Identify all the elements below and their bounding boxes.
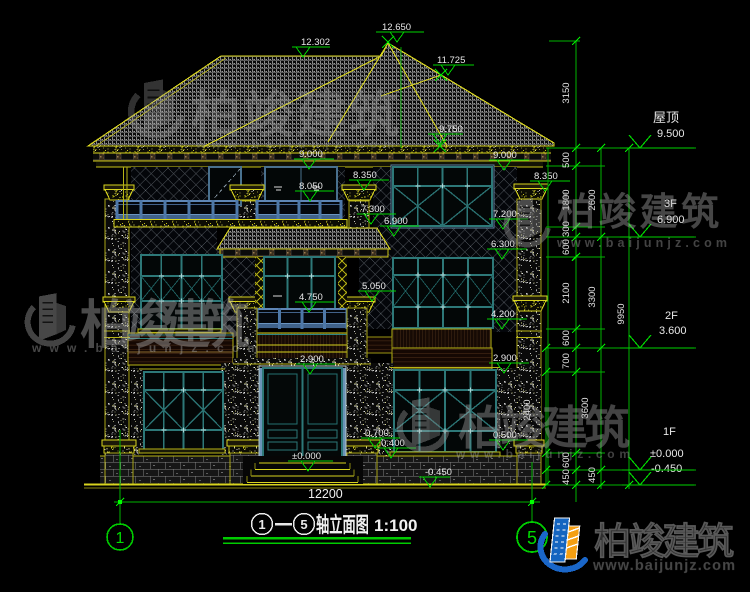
- svg-text:2.900: 2.900: [300, 354, 324, 365]
- svg-text:450: 450: [561, 469, 572, 485]
- svg-text:12.650: 12.650: [382, 22, 411, 33]
- svg-text:屋顶: 屋顶: [653, 110, 679, 125]
- svg-text:轴立面图: 轴立面图: [316, 513, 369, 537]
- svg-text:5.050: 5.050: [362, 281, 386, 292]
- svg-text:600: 600: [561, 330, 572, 346]
- svg-text:12.302: 12.302: [301, 37, 330, 48]
- svg-text:2.900: 2.900: [493, 353, 517, 364]
- svg-text:9.750: 9.750: [439, 124, 463, 135]
- svg-text:11.725: 11.725: [437, 55, 465, 66]
- svg-text:1: 1: [116, 530, 125, 547]
- svg-text:450: 450: [587, 467, 598, 483]
- svg-text:-0.450: -0.450: [425, 467, 452, 478]
- svg-text:500: 500: [561, 152, 572, 168]
- svg-text:9.500: 9.500: [657, 128, 685, 140]
- svg-text:www.baijunjz.com: www.baijunjz.com: [592, 558, 735, 574]
- svg-text:4.200: 4.200: [491, 309, 515, 320]
- svg-text:5: 5: [527, 528, 537, 548]
- svg-text:12200: 12200: [308, 487, 343, 501]
- svg-text:4.750: 4.750: [299, 292, 323, 303]
- svg-text:9.000: 9.000: [493, 150, 517, 161]
- svg-text:8.050: 8.050: [299, 181, 323, 192]
- svg-text:3.600: 3.600: [659, 325, 687, 337]
- svg-text:2F: 2F: [665, 310, 678, 322]
- svg-text:5: 5: [300, 517, 307, 532]
- svg-text:-0.450: -0.450: [651, 463, 682, 475]
- svg-text:9950: 9950: [616, 303, 627, 324]
- svg-text:3300: 3300: [587, 286, 598, 307]
- svg-text:7.300: 7.300: [361, 204, 385, 215]
- svg-text:1F: 1F: [663, 426, 676, 438]
- svg-text:±0.000: ±0.000: [650, 448, 684, 460]
- svg-text:1:100: 1:100: [374, 516, 417, 535]
- svg-text:1: 1: [258, 517, 265, 532]
- svg-text:2100: 2100: [561, 282, 572, 303]
- svg-text:8.350: 8.350: [353, 170, 377, 181]
- svg-text:±0.000: ±0.000: [292, 451, 321, 462]
- svg-text:8.350: 8.350: [534, 171, 558, 182]
- svg-text:柏竣建筑: 柏竣建筑: [594, 520, 734, 562]
- svg-text:700: 700: [561, 353, 572, 369]
- svg-text:3150: 3150: [561, 82, 572, 103]
- svg-text:6.900: 6.900: [384, 216, 408, 227]
